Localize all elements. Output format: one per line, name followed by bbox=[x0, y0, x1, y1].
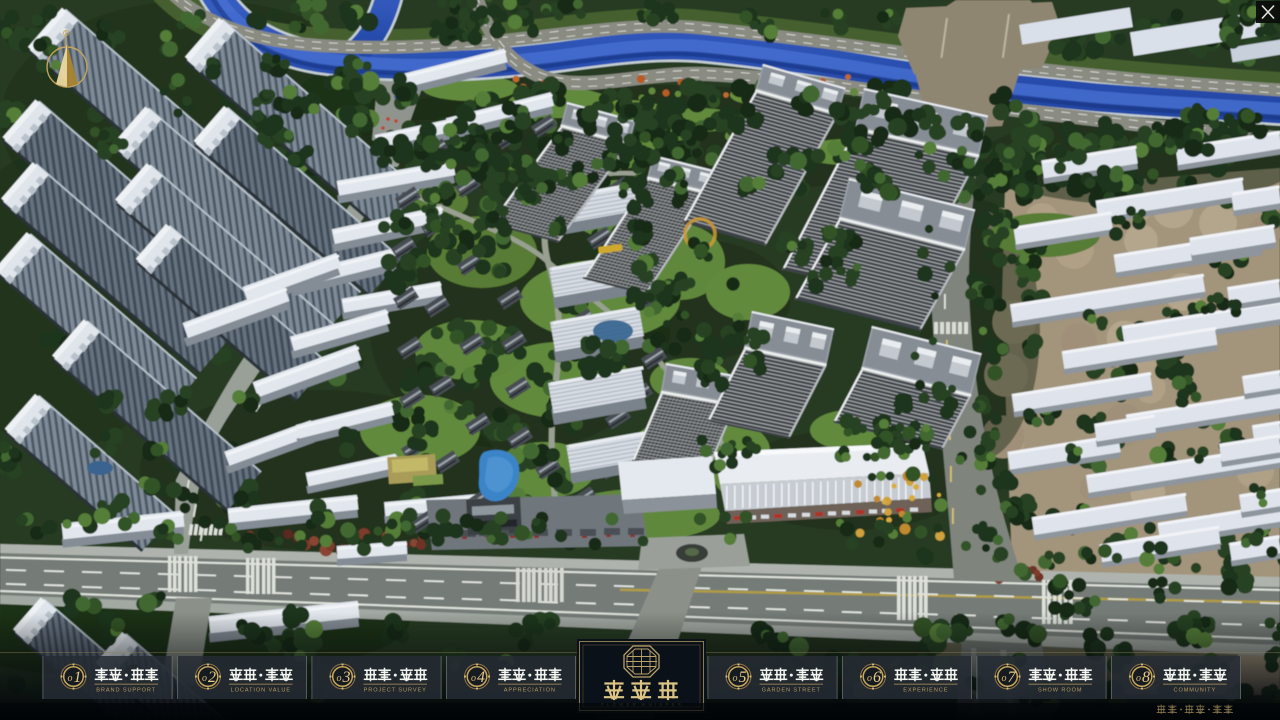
svg-text:4: 4 bbox=[477, 669, 485, 686]
svg-text:o: o bbox=[202, 673, 207, 684]
svg-text:8: 8 bbox=[1142, 669, 1150, 686]
svg-text:o: o bbox=[471, 673, 476, 684]
svg-text:6: 6 bbox=[873, 669, 881, 686]
svg-text:o: o bbox=[733, 673, 738, 684]
svg-text:EXPERIENCE: EXPERIENCE bbox=[903, 687, 948, 693]
svg-text:3: 3 bbox=[342, 669, 351, 686]
svg-text:1: 1 bbox=[74, 669, 82, 686]
svg-text:SHOW ROOM: SHOW ROOM bbox=[1038, 687, 1082, 693]
svg-text:GARDEN STREET: GARDEN STREET bbox=[762, 687, 821, 693]
svg-text:o: o bbox=[337, 673, 342, 684]
svg-text:7: 7 bbox=[1008, 669, 1017, 686]
svg-text:o: o bbox=[1136, 673, 1141, 684]
svg-text:o: o bbox=[68, 673, 73, 684]
svg-text:COMMUNITY: COMMUNITY bbox=[1174, 687, 1217, 693]
svg-text:PROJECT SURVEY: PROJECT SURVEY bbox=[364, 687, 427, 693]
svg-text:2: 2 bbox=[208, 669, 216, 686]
svg-text:APPRECIATION: APPRECIATION bbox=[504, 687, 556, 693]
svg-text:o: o bbox=[867, 673, 872, 684]
svg-text:BRAND SUPPORT: BRAND SUPPORT bbox=[96, 687, 156, 693]
svg-text:LOCATION VALUE: LOCATION VALUE bbox=[231, 687, 291, 693]
svg-text:5: 5 bbox=[739, 669, 747, 686]
svg-text:o: o bbox=[1002, 673, 1007, 684]
